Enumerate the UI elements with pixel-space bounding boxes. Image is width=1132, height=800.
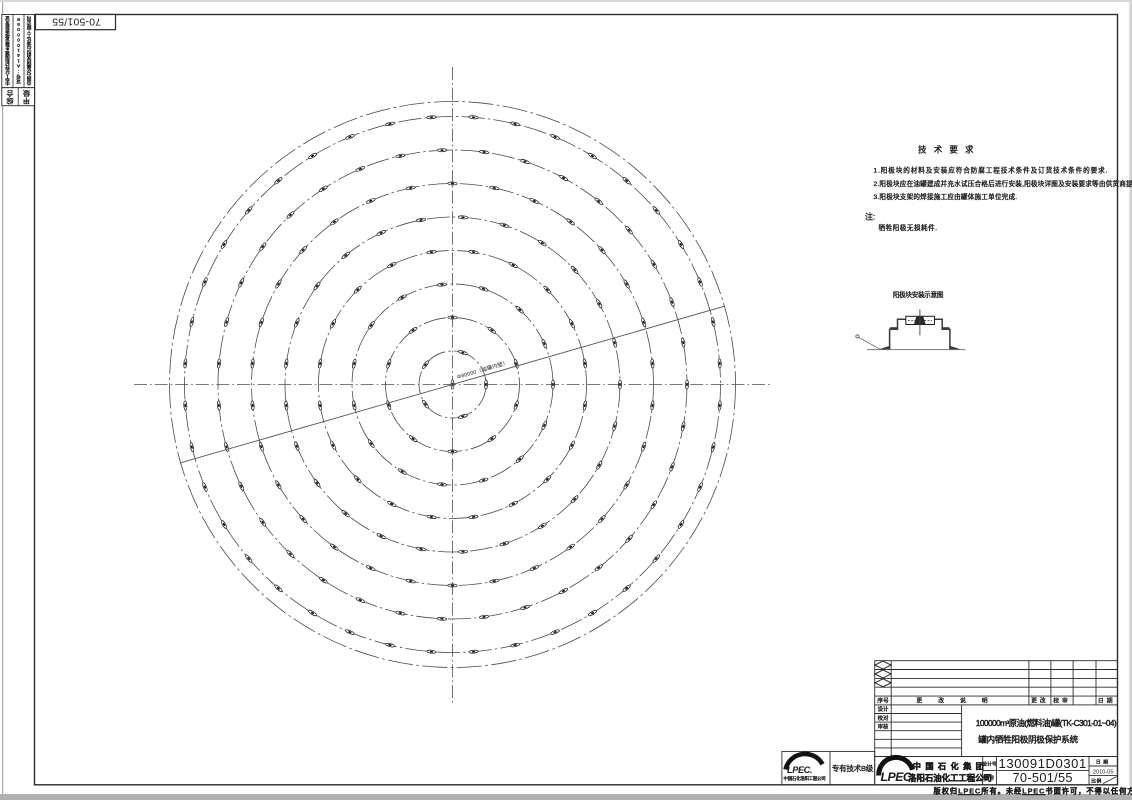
svg-text:0: 0 <box>17 42 20 48</box>
svg-text:号: 号 <box>16 73 21 79</box>
svg-text:洛阳石油化工工程公司: 洛阳石油化工工程公司 <box>908 773 992 783</box>
svg-text:0: 0 <box>17 31 20 37</box>
svg-text:证: 证 <box>5 14 10 21</box>
svg-text:1: 1 <box>17 57 20 63</box>
svg-text:LPEC.: LPEC. <box>787 765 812 775</box>
svg-text:1: 1 <box>17 47 20 53</box>
svg-text:图号: 图号 <box>983 776 996 782</box>
svg-text:合: 合 <box>7 89 14 98</box>
svg-text:更改: 更改 <box>1031 697 1049 705</box>
svg-text:中国石化洛阳工程公司: 中国石化洛阳工程公司 <box>784 775 826 782</box>
svg-text:1.阳极块的材料及安装应符合防腐工程技术条件及订货技术条件的: 1.阳极块的材料及安装应符合防腐工程技术条件及订货技术条件的要求. <box>874 166 1109 175</box>
svg-text:设计号: 设计号 <box>982 761 997 768</box>
svg-text:审核: 审核 <box>878 722 889 730</box>
svg-text:130091D0301: 130091D0301 <box>999 756 1087 771</box>
svg-text:甲: 甲 <box>23 96 30 104</box>
svg-text:阳极块安装示意图: 阳极块安装示意图 <box>893 290 944 299</box>
svg-text:日期: 日期 <box>1098 698 1116 705</box>
svg-text:版权归LPEC所有。未经LPEC书面许可，不得以任何方式使用: 版权归LPEC所有。未经LPEC书面许可，不得以任何方式使用 <box>934 786 1132 795</box>
svg-text:3.阳极块支架的焊接施工应由罐体施工单位完成.: 3.阳极块支架的焊接施工应由罐体施工单位完成. <box>874 192 1018 201</box>
svg-text:罐内牺牲阳极阴极保护系统: 罐内牺牲阳极阴极保护系统 <box>978 734 1078 745</box>
svg-text:100000m³原油(燃料油)罐(TK-C301-01~04: 100000m³原油(燃料油)罐(TK-C301-01~04) <box>976 718 1117 728</box>
svg-text:校审: 校审 <box>1053 697 1071 705</box>
svg-text:级: 级 <box>23 89 30 98</box>
svg-text:设计: 设计 <box>878 705 889 713</box>
svg-text:注:: 注: <box>865 212 875 222</box>
svg-text:0: 0 <box>17 37 20 43</box>
svg-text:校对: 校对 <box>878 714 889 722</box>
svg-text:日期: 日期 <box>1096 760 1111 766</box>
svg-text:比例: 比例 <box>1091 778 1102 785</box>
svg-text:8: 8 <box>17 16 20 22</box>
svg-text:2.阳极块应在油罐建成并充水试压合格后进行安装,阳极块详图及: 2.阳极块应在油罐建成并充水试压合格后进行安装,阳极块详图及安装要求等由供货商提… <box>874 179 1132 188</box>
svg-text:序号: 序号 <box>877 697 889 705</box>
svg-text:中国石化集团: 中国石化集团 <box>913 761 989 771</box>
svg-text:牺牲阳极无损耗件.: 牺牲阳极无损耗件. <box>879 223 938 232</box>
svg-text:更改说明: 更改说明 <box>916 697 1003 705</box>
svg-text:0: 0 <box>17 26 20 32</box>
svg-text:综: 综 <box>7 96 14 105</box>
svg-text:4: 4 <box>17 52 20 58</box>
svg-text:司: 司 <box>26 15 31 20</box>
svg-text:技 术 要 求: 技 术 要 求 <box>918 145 976 155</box>
svg-text:2010-05: 2010-05 <box>1093 770 1114 776</box>
svg-text:证: 证 <box>16 78 21 85</box>
svg-text:70-501/55: 70-501/55 <box>1013 770 1073 785</box>
svg-text:专有技术B级: 专有技术B级 <box>832 763 874 773</box>
svg-text:70-501/55: 70-501/55 <box>52 15 101 26</box>
svg-text:5: 5 <box>17 21 20 27</box>
